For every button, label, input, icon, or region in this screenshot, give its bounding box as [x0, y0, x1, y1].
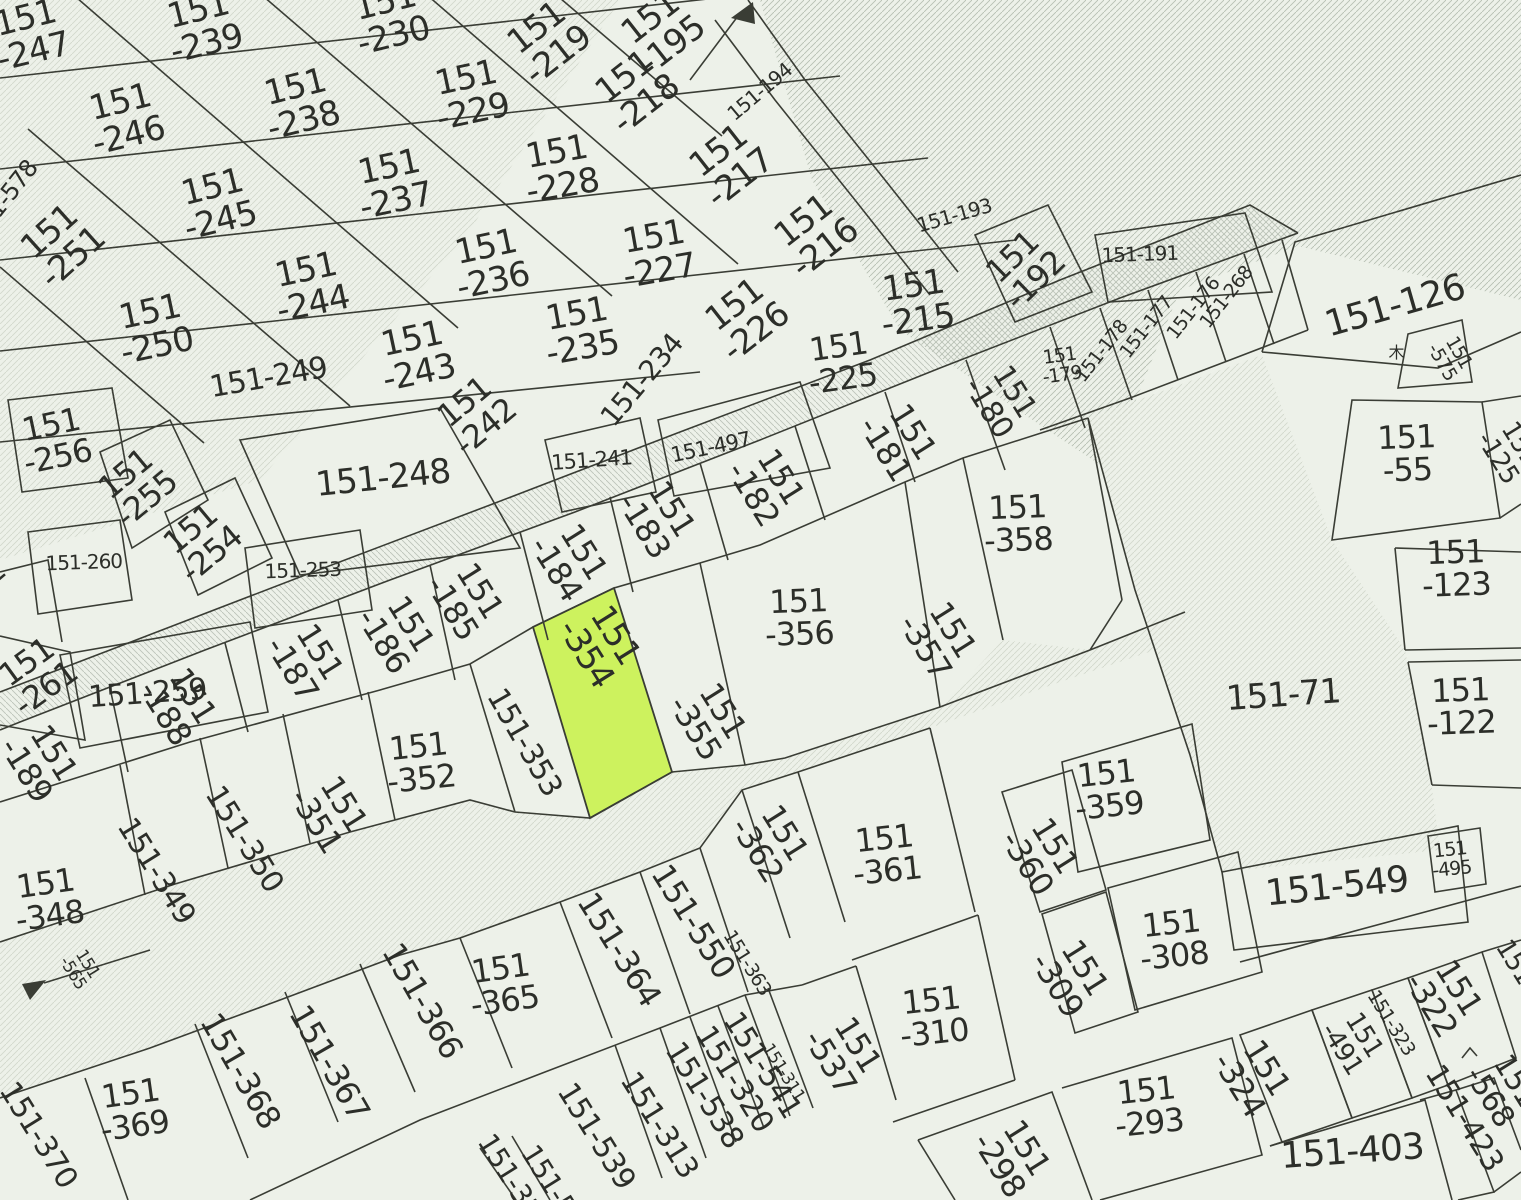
cadastral-map: 木151-247151-239151-230151-219151-195151-…	[0, 0, 1521, 1200]
parcel-label-151-358: 151-358	[982, 487, 1053, 560]
tree-symbol: 木	[1388, 343, 1404, 362]
cadastral-map-canvas: 木151-247151-239151-230151-219151-195151-…	[0, 0, 1521, 1200]
parcel-label-151-253: 151-253	[264, 557, 342, 584]
parcel-label-151-122: 151-122	[1425, 670, 1496, 743]
parcel-label-151-55: 151-55	[1377, 417, 1438, 490]
parcel-label-151-191: 151-191	[1101, 241, 1178, 268]
parcel-label-151-71: 151-71	[1225, 671, 1342, 719]
parcel-label-151-260: 151-260	[45, 549, 123, 576]
parcel-label-151-123: 151-123	[1420, 532, 1491, 605]
parcel-label-151-356: 151-356	[763, 581, 834, 654]
